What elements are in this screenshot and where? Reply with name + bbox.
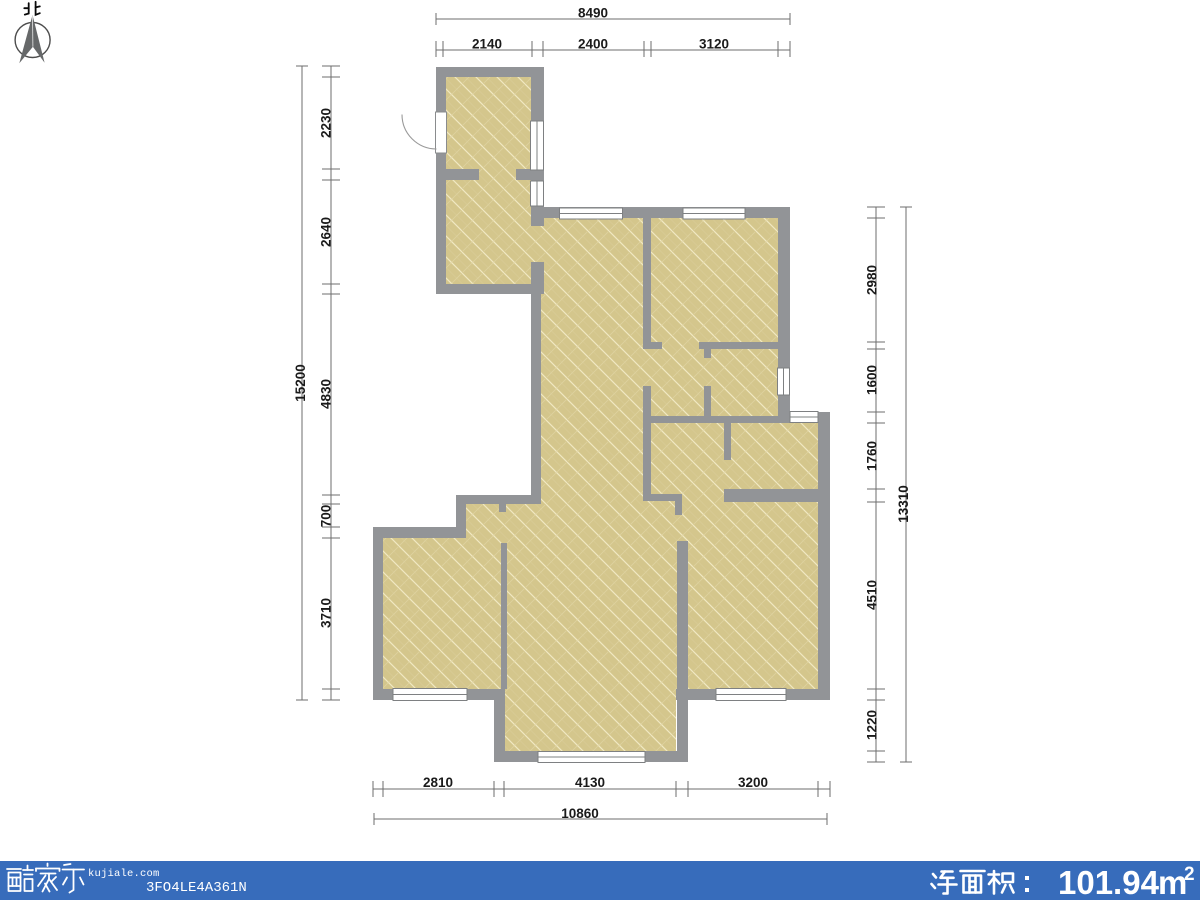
svg-text:kujiale.com: kujiale.com	[88, 868, 160, 880]
svg-text:4830: 4830	[319, 379, 334, 409]
svg-text:1600: 1600	[865, 365, 880, 395]
svg-text:2980: 2980	[865, 265, 880, 295]
svg-text:1760: 1760	[865, 441, 880, 471]
svg-text:4130: 4130	[575, 775, 605, 790]
svg-text:2230: 2230	[319, 108, 334, 138]
svg-text:2400: 2400	[578, 37, 608, 52]
svg-text:3120: 3120	[699, 37, 729, 52]
svg-text:2140: 2140	[472, 37, 502, 52]
svg-text:13310: 13310	[896, 485, 911, 523]
svg-text:2: 2	[1184, 864, 1195, 885]
svg-text:2810: 2810	[423, 775, 453, 790]
svg-text:101.94: 101.94	[1058, 864, 1160, 900]
svg-text:3200: 3200	[738, 775, 768, 790]
svg-text:1220: 1220	[865, 710, 880, 740]
svg-text:2640: 2640	[319, 217, 334, 247]
svg-text:15200: 15200	[293, 364, 308, 402]
svg-text:3710: 3710	[319, 598, 334, 628]
svg-text:3FO4LE4A361N: 3FO4LE4A361N	[146, 880, 247, 896]
svg-text:10860: 10860	[561, 806, 599, 821]
svg-text:700: 700	[319, 505, 334, 528]
svg-text:4510: 4510	[865, 580, 880, 610]
svg-text:8490: 8490	[578, 6, 608, 21]
svg-text:m: m	[1158, 864, 1187, 900]
